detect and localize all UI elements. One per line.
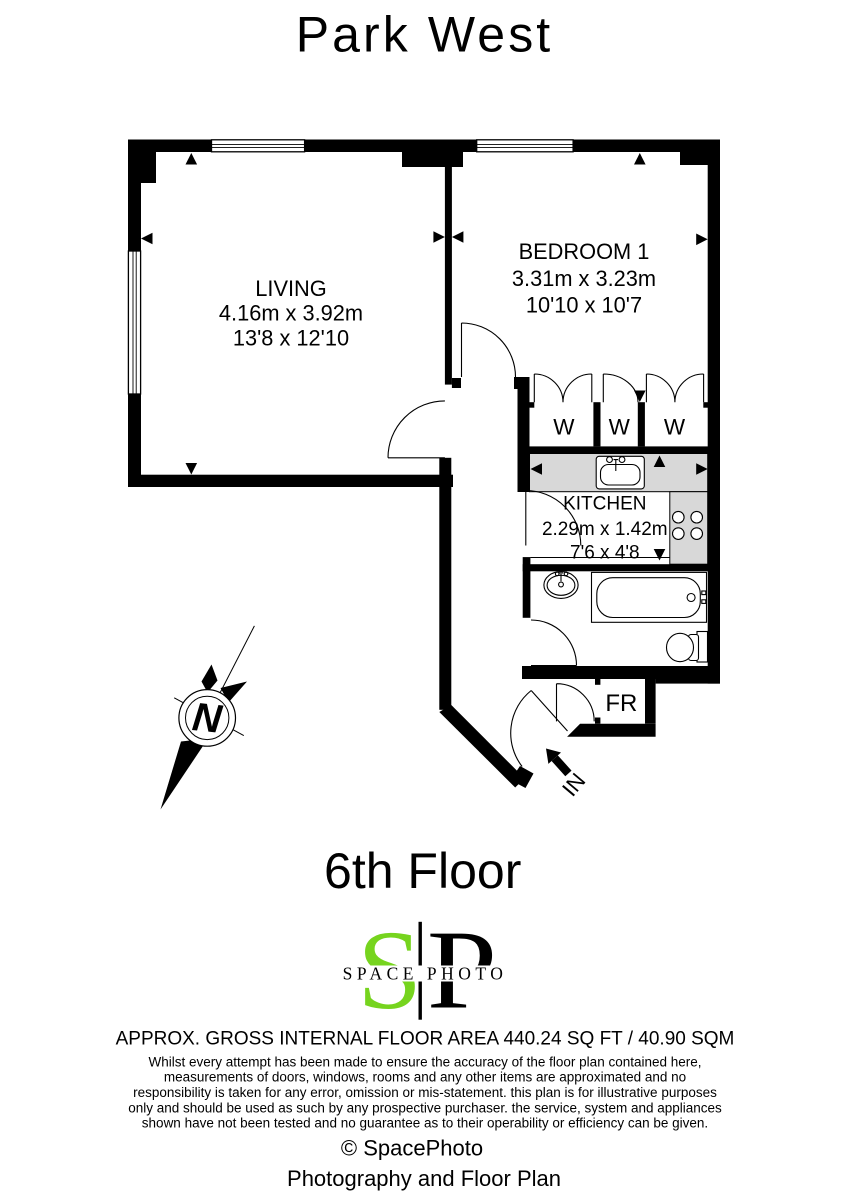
svg-text:2.29m x 1.42m: 2.29m x 1.42m	[542, 519, 668, 540]
svg-text:© SpacePhoto: © SpacePhoto	[341, 1136, 483, 1161]
svg-text:3.31m x 3.23m: 3.31m x 3.23m	[512, 266, 656, 291]
svg-text:10'10 x 10'7: 10'10 x 10'7	[526, 293, 642, 318]
svg-text:4.16m x 3.92m: 4.16m x 3.92m	[219, 301, 363, 326]
svg-text:W: W	[664, 415, 686, 440]
svg-text:7'6 x 4'8: 7'6 x 4'8	[570, 543, 640, 564]
svg-text:only and should be used as suc: only and should be used as such by any p…	[128, 1100, 722, 1115]
svg-text:Whilst every attempt has been: Whilst every attempt has been made to en…	[148, 1054, 701, 1069]
svg-text:responsibility is taken for an: responsibility is taken for any error, o…	[133, 1085, 717, 1100]
svg-text:6th Floor: 6th Floor	[324, 843, 521, 899]
svg-text:W: W	[553, 415, 575, 440]
svg-text:LIVING: LIVING	[255, 276, 326, 301]
svg-text:W: W	[609, 415, 631, 440]
svg-text:KITCHEN: KITCHEN	[563, 494, 646, 515]
svg-text:N: N	[190, 695, 224, 742]
svg-text:APPROX. GROSS INTERNAL FLOOR A: APPROX. GROSS INTERNAL FLOOR AREA 440.24…	[116, 1029, 735, 1050]
svg-text:Photography and Floor Plan: Photography and Floor Plan	[287, 1166, 561, 1191]
svg-text:FR: FR	[605, 690, 637, 717]
svg-text:shown have not been tested and: shown have not been tested and no guaran…	[142, 1116, 708, 1131]
svg-text:Park West: Park West	[296, 7, 554, 63]
svg-text:13'8 x 12'10: 13'8 x 12'10	[233, 325, 349, 350]
svg-text:SPACE PHOTO: SPACE PHOTO	[343, 963, 508, 983]
svg-text:BEDROOM 1: BEDROOM 1	[519, 239, 650, 264]
svg-text:measurements of doors, windows: measurements of doors, windows, rooms an…	[164, 1070, 686, 1085]
